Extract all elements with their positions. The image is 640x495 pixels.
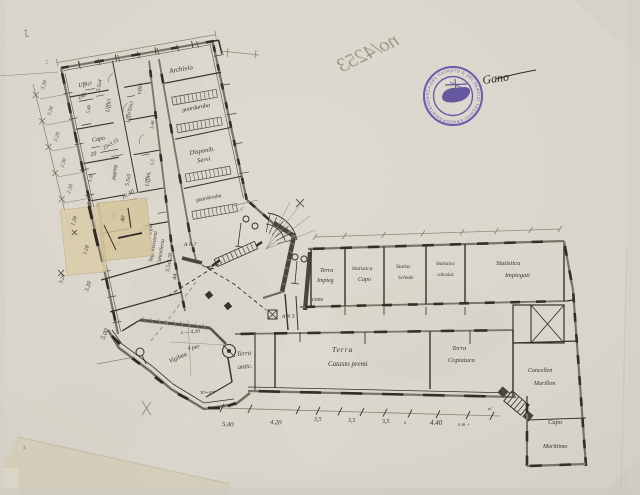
svg-text:Terra: Terra bbox=[332, 345, 353, 354]
svg-text:Uffici: Uffici bbox=[104, 98, 112, 113]
svg-text:3,5: 3,5 bbox=[347, 418, 356, 424]
svg-text:cone: cone bbox=[312, 297, 324, 303]
svg-text:5,40: 5,40 bbox=[222, 421, 234, 429]
svg-text:Marittimo: Marittimo bbox=[542, 444, 567, 450]
svg-text:Impiegati: Impiegati bbox=[504, 272, 530, 279]
svg-text:3,5: 3,5 bbox=[313, 417, 322, 423]
svg-text:44: 44 bbox=[171, 273, 179, 280]
svg-text:Statistica: Statistica bbox=[436, 262, 455, 267]
svg-text:Catasto premi: Catasto premi bbox=[328, 360, 368, 368]
svg-text:Statistica: Statistica bbox=[352, 266, 373, 272]
svg-text:Capo: Capo bbox=[358, 277, 371, 283]
svg-text:3,5: 3,5 bbox=[381, 419, 390, 425]
svg-text:Capo: Capo bbox=[548, 419, 563, 426]
svg-text:al.: al. bbox=[488, 406, 493, 411]
svg-text:calculat.: calculat. bbox=[437, 273, 454, 278]
svg-text:Terra: Terra bbox=[452, 345, 466, 352]
svg-text:Terra: Terra bbox=[320, 268, 333, 274]
svg-text:Impieg: Impieg bbox=[316, 278, 334, 284]
svg-text:Statistica: Statistica bbox=[496, 260, 520, 267]
svg-text:40: 40 bbox=[119, 215, 127, 222]
svg-text:antic.: antic. bbox=[238, 363, 254, 371]
svg-text:Marillon: Marillon bbox=[533, 381, 555, 387]
svg-text:Statist.: Statist. bbox=[396, 264, 411, 270]
svg-text:Uffici: Uffici bbox=[138, 82, 144, 94]
svg-text:Schede: Schede bbox=[398, 275, 414, 281]
svg-text:4.20: 4.20 bbox=[270, 419, 282, 427]
svg-text:4.40: 4.40 bbox=[430, 419, 443, 427]
svg-text:TO=877: TO=877 bbox=[200, 390, 216, 395]
svg-text:A N T.: A N T. bbox=[281, 314, 296, 320]
svg-text:Terra: Terra bbox=[237, 350, 252, 358]
svg-text:x m +: x m + bbox=[457, 423, 470, 428]
svg-text:Copiatura: Copiatura bbox=[448, 357, 475, 364]
svg-text:Cancellen: Cancellen bbox=[528, 368, 552, 374]
svg-text:A N 7: A N 7 bbox=[183, 242, 197, 248]
svg-text:20: 20 bbox=[90, 151, 97, 158]
